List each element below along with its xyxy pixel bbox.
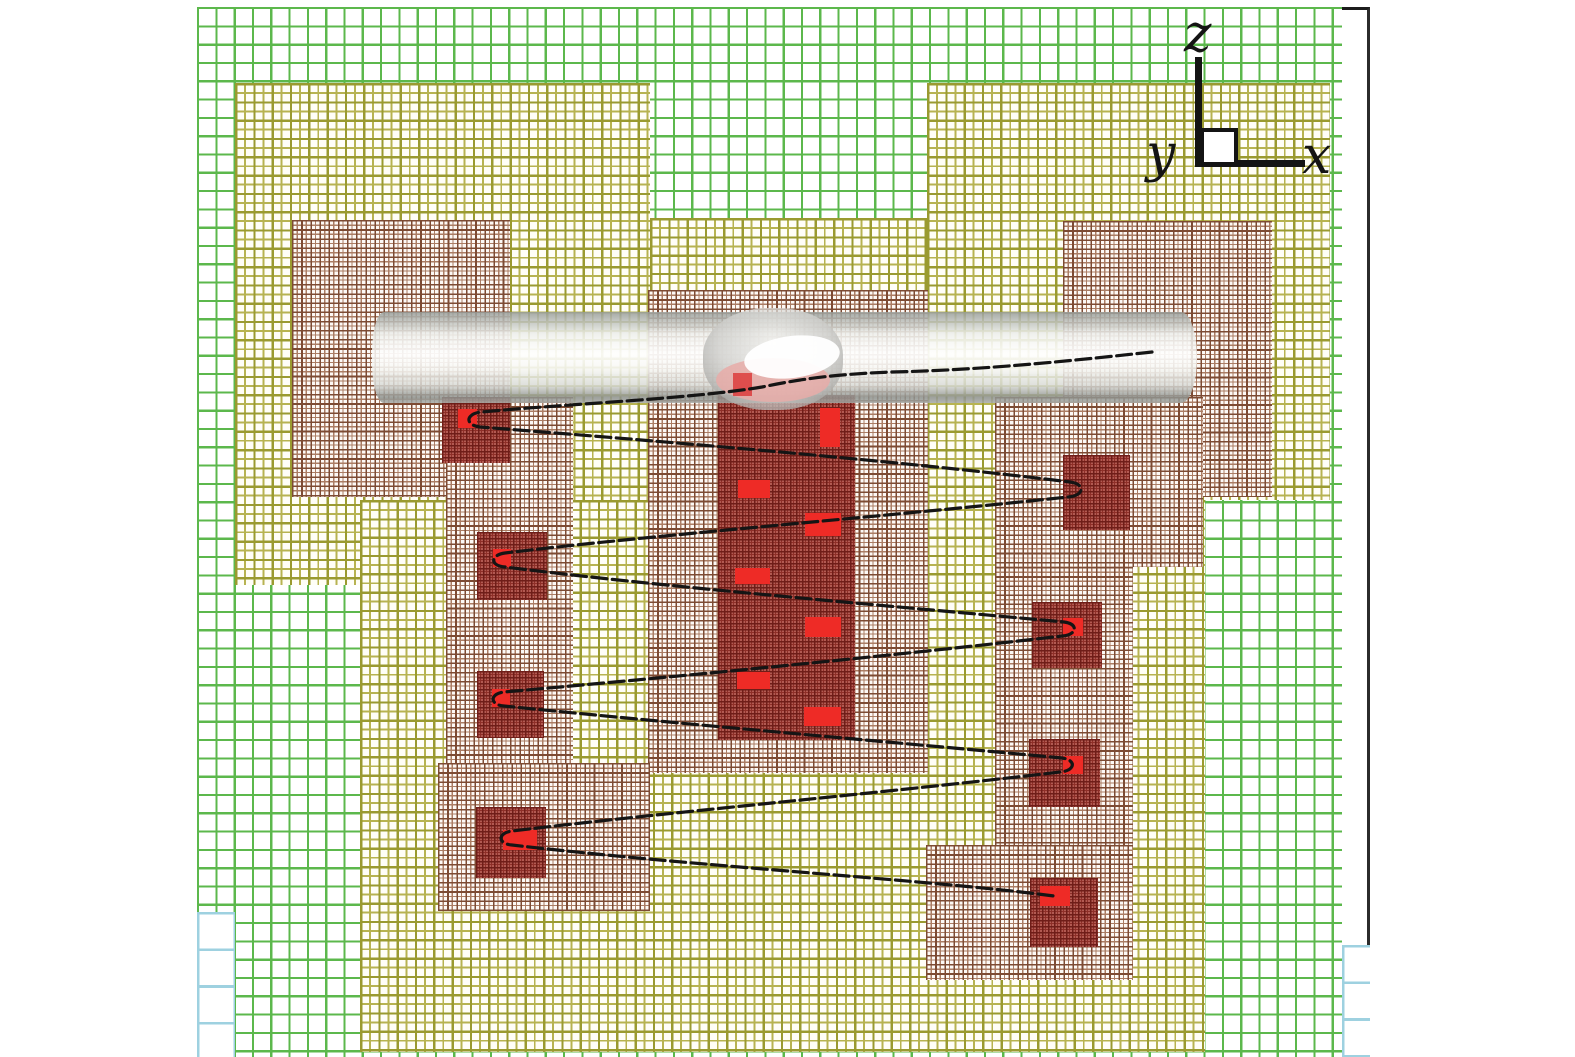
axis-label-y: y xyxy=(1146,128,1175,180)
particle-trajectory xyxy=(0,0,1575,1057)
axis-label-x: x xyxy=(1302,130,1331,182)
trajectory-path xyxy=(469,352,1152,896)
amr-figure: z y x xyxy=(0,0,1575,1057)
axis-label-z: z xyxy=(1184,8,1211,60)
axis-origin-box xyxy=(1200,128,1238,166)
